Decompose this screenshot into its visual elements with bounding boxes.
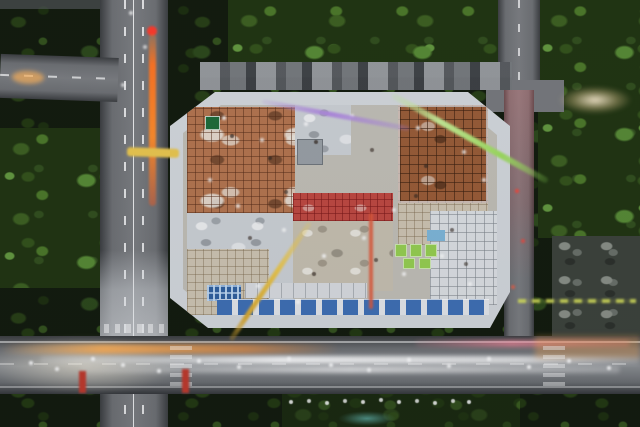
orange-crane-boom	[149, 34, 156, 206]
crosswalk-bottom-road-right	[543, 344, 565, 386]
rebar-zone-top-left	[187, 107, 295, 213]
lit-buildings-bottom	[338, 411, 396, 426]
red-tower-crane-mast	[369, 213, 373, 309]
material-storage-right	[552, 236, 640, 336]
trees-right	[538, 0, 640, 238]
excavation-zone-center	[293, 221, 393, 291]
yellow-boom-over-trees	[518, 299, 636, 303]
vehicle-headlights	[0, 336, 2, 338]
red-formwork-block	[293, 193, 393, 221]
green-deck-panel-2	[410, 244, 422, 257]
green-deck-panel-4	[403, 258, 415, 269]
top-edge-road-sliver	[0, 0, 112, 9]
road-bottom-horizontal	[0, 336, 640, 394]
vehicle-lights-left-road	[100, 0, 102, 2]
trees-left	[0, 128, 100, 288]
parked-car-lights	[0, 0, 2, 2]
green-deck-panel-1	[395, 244, 407, 257]
red-barrier-right	[182, 369, 189, 393]
green-deck-panel-3	[425, 244, 437, 257]
container-storage-band-top	[200, 62, 512, 90]
green-field-bottom	[282, 394, 520, 427]
red-lights-right-road	[504, 90, 506, 92]
crane-counter-jib	[127, 147, 179, 158]
construction-site	[165, 87, 515, 333]
watermark: 百家号/观鹿子	[500, 397, 638, 419]
red-barrier-left	[79, 371, 86, 393]
white-light-trail-2	[80, 366, 620, 373]
blue-panel	[427, 230, 445, 241]
road-branch-west	[0, 54, 119, 102]
crosswalk-left-road	[104, 324, 164, 333]
trees-top-center	[228, 0, 524, 68]
core-structure-block	[297, 139, 323, 165]
aerial-night-photo: 百家号/观鹿子	[0, 0, 640, 427]
slab-grid-zone-bottom-right	[430, 211, 497, 305]
floodlit-area-right	[558, 86, 632, 114]
green-safety-net-square	[205, 116, 220, 130]
green-deck-panel-5	[419, 258, 431, 269]
